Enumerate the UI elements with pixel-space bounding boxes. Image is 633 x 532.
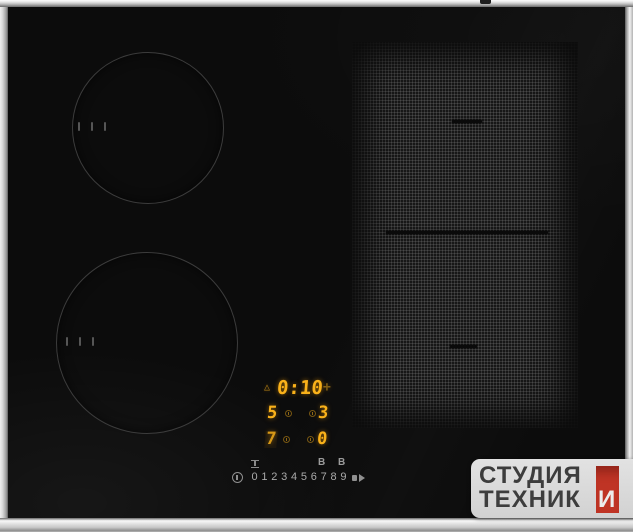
slider-digit[interactable]: 5 [299,471,308,484]
watermark-accent-letter: И [598,488,615,512]
lock-bar [352,475,357,481]
timer-plus-label: + [323,381,331,394]
steel-frame-left [0,0,8,532]
flex-zone-marker-middle [386,231,548,234]
dash-icon [92,337,94,346]
power-level-top-left: 5 [266,405,278,422]
slider-digit[interactable]: 4 [290,471,299,484]
slider-digit[interactable]: 2 [270,471,279,484]
booster-label: B [318,458,325,468]
slider-digit[interactable]: 7 [319,471,328,484]
watermark-line1: СТУДИЯ [479,464,582,488]
power-icon[interactable] [232,472,243,483]
watermark-badge: СТУДИЯ ТЕХНИК И [471,459,633,518]
dash-icon [66,337,68,346]
zone-timer-icon [309,410,316,417]
timer-display: 0:10 [276,379,323,398]
power-level-bottom-right: 0 [316,431,328,448]
slider-digit[interactable]: 8 [329,471,338,484]
zone-timer-icon [285,410,292,417]
frame-notch [480,0,491,4]
flex-zone-area [352,42,578,428]
slider-digit[interactable]: 0 [250,471,259,484]
booster-label: B [338,458,345,468]
slider-digit[interactable]: 1 [260,471,269,484]
steel-frame-top [0,0,633,7]
power-level-top-right: 3 [317,405,329,422]
watermark-line2: ТЕХНИК [479,488,581,512]
power-slider[interactable]: 0 1 2 3 4 5 6 7 8 9 [250,471,348,484]
slider-digit[interactable]: 6 [309,471,318,484]
power-level-bottom-left: 7 [264,431,278,448]
zone-marker-dashes-top [78,122,106,131]
pause-icon[interactable] [251,460,259,468]
lock-arrow [359,474,365,482]
dash-icon [104,122,106,131]
steel-frame-bottom [0,518,633,532]
flex-zone-marker-bottom [450,345,477,348]
dash-icon [79,337,81,346]
zone-timer-icon [307,436,314,443]
watermark-red-block: И [596,466,619,513]
key-lock-icon[interactable] [352,474,366,482]
flex-zone-marker-top [452,120,482,123]
cooktop-photo: △ 0:10 + 5 3 7 0 B B 0 1 2 3 4 5 6 7 8 9… [0,0,633,532]
zone-marker-dashes-bottom [66,337,94,346]
dash-icon [91,122,93,131]
alarm-timer-icon: △ [264,383,270,393]
zone-timer-icon [283,436,290,443]
slider-digit[interactable]: 9 [339,471,348,484]
steel-frame-right [625,0,633,532]
slider-digit[interactable]: 3 [280,471,289,484]
dash-icon [78,122,80,131]
